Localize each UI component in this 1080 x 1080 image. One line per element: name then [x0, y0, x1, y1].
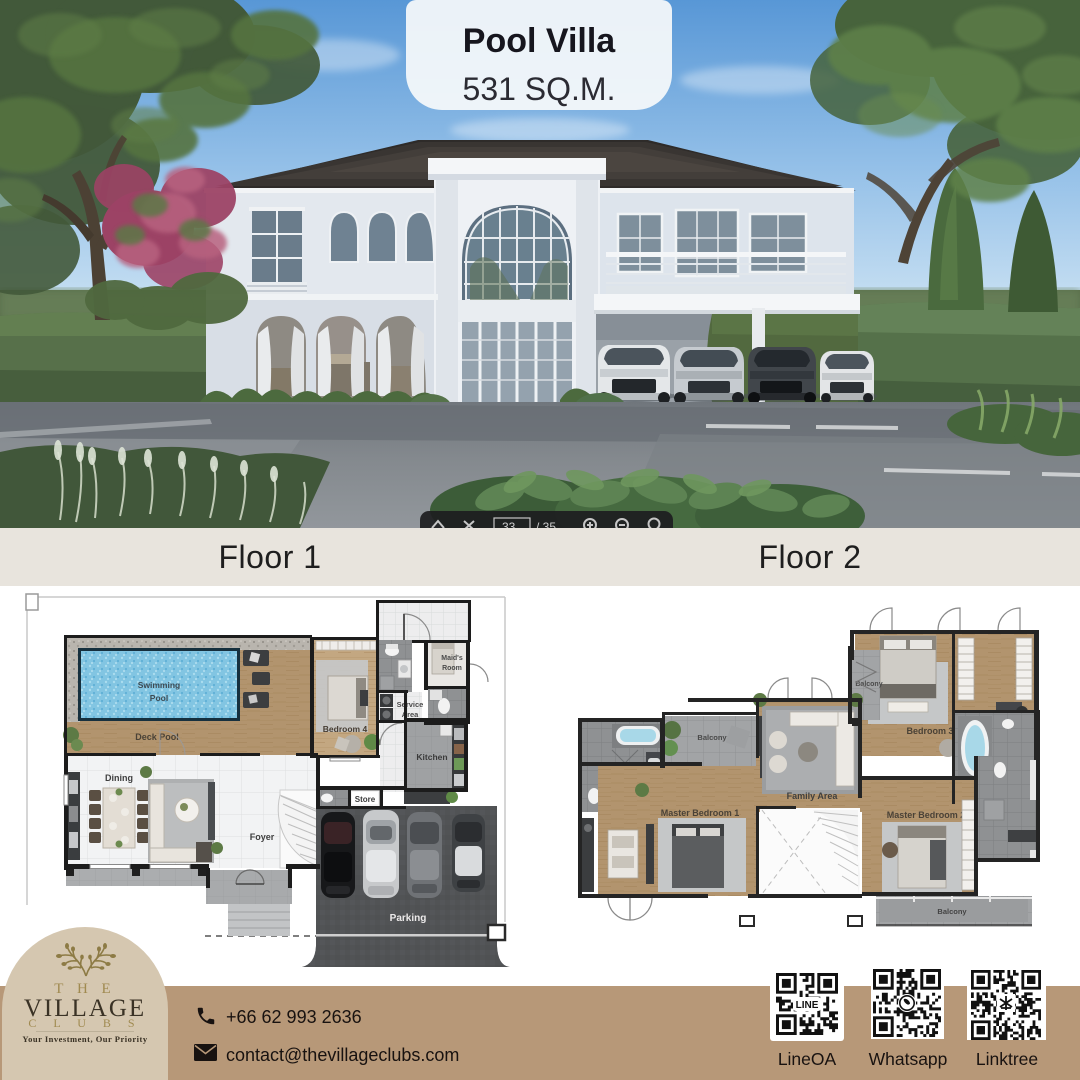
svg-text:33: 33 — [502, 520, 516, 528]
svg-text:Foyer: Foyer — [250, 832, 275, 842]
svg-text:Balcony: Balcony — [937, 907, 967, 916]
svg-text:Swimming: Swimming — [138, 680, 181, 690]
svg-text:Maid's: Maid's — [441, 655, 463, 662]
svg-text:Service: Service — [397, 700, 424, 709]
svg-text:Kitchen: Kitchen — [416, 752, 447, 762]
svg-text:Balcony: Balcony — [697, 733, 727, 742]
svg-text:LINE: LINE — [796, 1000, 819, 1011]
svg-text:Dining: Dining — [105, 773, 133, 783]
svg-text:Master Bedroom 2: Master Bedroom 2 — [887, 810, 966, 820]
svg-text:Room: Room — [442, 665, 462, 672]
svg-text:Balcony: Balcony — [855, 681, 882, 688]
svg-text:Master Bedroom 1: Master Bedroom 1 — [661, 808, 740, 818]
svg-text:Pool: Pool — [150, 693, 168, 703]
svg-text:Bedroom 4: Bedroom 4 — [323, 724, 368, 734]
svg-text:Family Area: Family Area — [787, 791, 839, 801]
svg-text:Parking: Parking — [390, 913, 427, 924]
svg-text:Bedroom 3: Bedroom 3 — [906, 726, 953, 736]
svg-text:Store: Store — [355, 795, 376, 804]
svg-text:/ 35: / 35 — [536, 520, 556, 528]
